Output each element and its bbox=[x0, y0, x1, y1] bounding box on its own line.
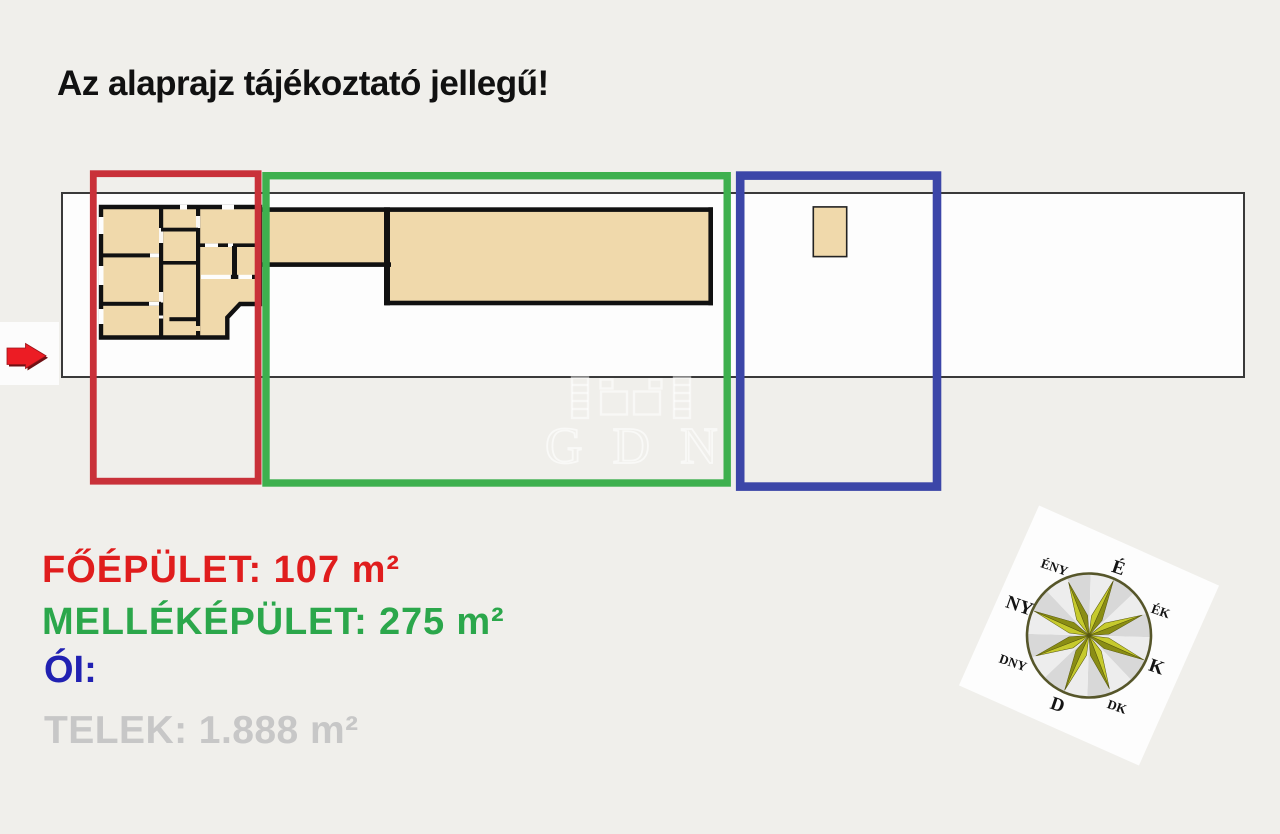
svg-text:GDN: GDN bbox=[545, 418, 748, 475]
